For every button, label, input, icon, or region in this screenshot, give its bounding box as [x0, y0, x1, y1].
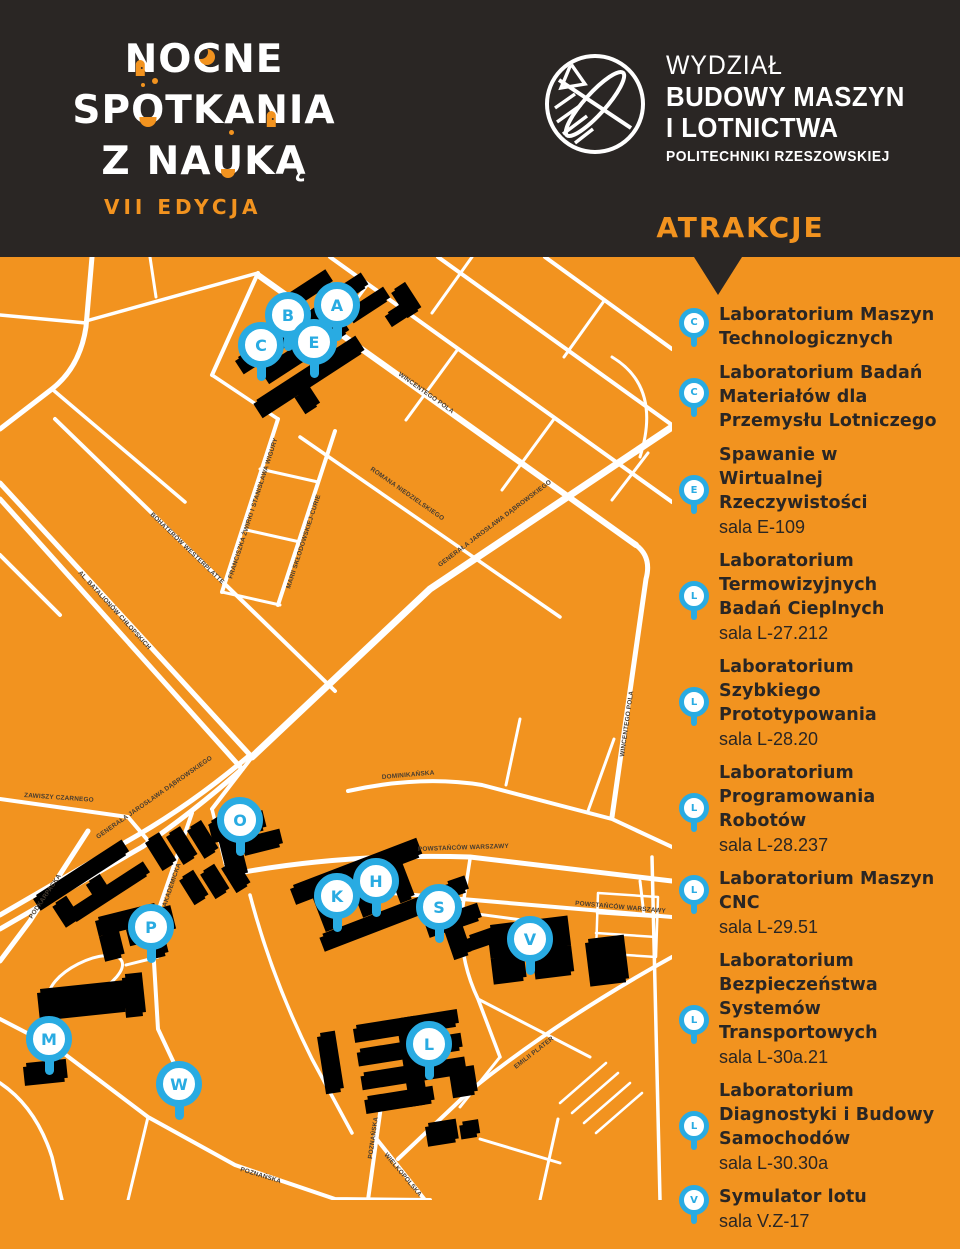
attractions-heading: ATRAKCJE — [648, 211, 833, 244]
pin-letter: M — [26, 1016, 72, 1062]
location-pin-icon: C — [678, 308, 710, 347]
pin-letter: C — [238, 322, 284, 368]
pin-stem — [691, 504, 697, 514]
pin-letter: E — [679, 475, 709, 505]
logo-letter: O — [158, 37, 192, 82]
pin-letter: V — [507, 916, 553, 962]
map-pin-H[interactable]: H — [353, 858, 399, 917]
bubble-icon — [152, 78, 158, 84]
attraction-item[interactable]: C Laboratorium Maszyn Technologicznych — [678, 303, 944, 351]
pin-letter: L — [679, 687, 709, 717]
pin-stem — [175, 1106, 184, 1120]
logo-letter: K — [193, 88, 224, 133]
pin-letter: W — [156, 1061, 202, 1107]
bubble-icon — [141, 83, 145, 87]
logo-letter: Ą — [275, 139, 306, 184]
pin-stem — [147, 949, 156, 963]
attraction-room: sala L-27.212 — [719, 621, 944, 645]
pin-letter: L — [679, 1005, 709, 1035]
svg-text:BOHATERÓW WESTERPLATTE: BOHATERÓW WESTERPLATTE — [149, 510, 228, 586]
attraction-title: Laboratorium Termowizyjnych Badań Ciepln… — [719, 549, 944, 621]
map-pin-V[interactable]: V — [507, 916, 553, 975]
pin-letter: E — [291, 319, 337, 365]
faculty-name: WYDZIAŁ BUDOWY MASZYN I LOTNICTWA POLITE… — [666, 50, 905, 166]
svg-text:GENERAŁA JAROSŁAWA DĄBROWSKIEG: GENERAŁA JAROSŁAWA DĄBROWSKIEGO — [437, 479, 553, 569]
logo-letter: S — [72, 88, 101, 133]
pin-stem — [691, 407, 697, 417]
map-pin-P[interactable]: P — [128, 904, 174, 963]
pin-stem — [425, 1066, 434, 1080]
svg-text:POZNAŃSKA: POZNAŃSKA — [239, 1164, 282, 1185]
pin-letter: O — [217, 797, 263, 843]
logo-letter: N — [222, 37, 256, 82]
logo-letter: A — [180, 139, 211, 184]
location-pin-icon: E — [678, 475, 710, 514]
pin-stem — [435, 929, 444, 943]
moon-icon — [199, 49, 215, 65]
pin-letter: V — [679, 1185, 709, 1215]
pin-stem — [691, 822, 697, 832]
location-pin-icon: L — [678, 1005, 710, 1044]
map-pin-L[interactable]: L — [406, 1021, 452, 1080]
event-logo: NOCNE SPOTKANIA ZNAUKĄ VII EDYCJA — [58, 34, 350, 219]
map-graphic: AL. BATALIONÓW CHŁOPSKICH BOHATERÓW WEST… — [0, 257, 672, 1200]
attraction-title: Laboratorium Programowania Robotów — [719, 761, 944, 833]
logo-letter: A — [304, 88, 335, 133]
pin-stem — [333, 918, 342, 932]
door-icon — [267, 111, 276, 127]
pin-letter: H — [353, 858, 399, 904]
location-pin-icon: L — [678, 793, 710, 832]
pin-letter: S — [416, 884, 462, 930]
pin-letter: L — [679, 581, 709, 611]
pin-letter: C — [679, 308, 709, 338]
svg-text:WIELKOPOLSKA: WIELKOPOLSKA — [382, 1152, 423, 1198]
faculty-line: I LOTNICTWA — [666, 112, 905, 143]
location-pin-icon: C — [678, 378, 710, 417]
attraction-title: Laboratorium Badań Materiałów dla Przemy… — [719, 361, 944, 433]
pin-letter: C — [679, 378, 709, 408]
logo-letter: A — [224, 88, 255, 133]
svg-text:POWSTAŃCÓW WARSZAWY: POWSTAŃCÓW WARSZAWY — [418, 841, 510, 853]
logo-letter: K — [244, 139, 275, 184]
event-map-poster: { "theme": { "orange": "#F2931F", "dark"… — [0, 0, 960, 1200]
location-pin-icon: L — [678, 875, 710, 914]
attractions-list: C Laboratorium Maszyn Technologicznych C… — [672, 257, 960, 1200]
logo-letter: E — [256, 37, 284, 82]
location-pin-icon: L — [678, 687, 710, 726]
attraction-title: Symulator lotu — [719, 1185, 944, 1209]
pin-stem — [691, 1214, 697, 1224]
svg-text:WINCENTEGO POLA: WINCENTEGO POLA — [397, 371, 455, 415]
logo-line-nocne: NOCNE — [58, 34, 350, 85]
map-pin-W[interactable]: W — [156, 1061, 202, 1120]
map-pin-O[interactable]: O — [217, 797, 263, 856]
svg-text:DOMINIKAŃSKA: DOMINIKAŃSKA — [381, 767, 435, 781]
location-pin-icon: L — [678, 1111, 710, 1150]
attraction-title: Laboratorium Maszyn Technologicznych — [719, 303, 944, 351]
attraction-title: Laboratorium Bezpieczeństwa Systemów Tra… — [719, 949, 944, 1045]
attraction-title: Spawanie w Wirtualnej Rzeczywistości — [719, 443, 944, 515]
map-pin-C[interactable]: C — [238, 322, 284, 381]
faculty-line: WYDZIAŁ — [666, 50, 905, 81]
attraction-room: sala L-28.20 — [719, 727, 944, 751]
attraction-room: sala V.Z-17 — [719, 1209, 944, 1233]
pin-stem — [257, 367, 266, 381]
pin-letter: L — [406, 1021, 452, 1067]
attraction-item[interactable]: L Laboratorium Szybkiego Prototypowanias… — [678, 655, 944, 751]
pin-stem — [526, 961, 535, 975]
door-icon — [136, 60, 145, 76]
logo-letter: I — [289, 88, 305, 133]
pin-letter: P — [128, 904, 174, 950]
attraction-title: Laboratorium Diagnostyki i Budowy Samoch… — [719, 1079, 944, 1151]
attraction-item[interactable]: L Laboratorium Diagnostyki i Budowy Samo… — [678, 1079, 944, 1175]
svg-text:WINCENTEGO POLA: WINCENTEGO POLA — [619, 690, 635, 757]
attraction-room: sala E-109 — [719, 515, 944, 539]
pin-stem — [691, 1034, 697, 1044]
attraction-item[interactable]: E Spawanie w Wirtualnej Rzeczywistościsa… — [678, 443, 944, 539]
logo-letter: T — [165, 88, 193, 133]
attraction-item[interactable]: V Symulator lotusala V.Z-17 — [678, 1185, 944, 1249]
pin-stem — [691, 337, 697, 347]
pin-stem — [310, 364, 319, 378]
attraction-item[interactable]: L Laboratorium Programowania Robotówsala… — [678, 761, 944, 857]
attraction-item[interactable]: L Laboratorium Termowizyjnych Badań Ciep… — [678, 549, 944, 645]
logo-letter: Z — [101, 139, 130, 184]
map-pin-E[interactable]: E — [291, 319, 337, 378]
pin-letter: L — [679, 1111, 709, 1141]
pin-stem — [691, 904, 697, 914]
logo-line-spotkania: SPOTKANIA — [58, 85, 350, 136]
location-pin-icon: V — [678, 1185, 710, 1224]
faculty-logo — [541, 50, 649, 163]
header-bar: NOCNE SPOTKANIA ZNAUKĄ VII EDYCJA WYDZIA… — [0, 0, 960, 257]
edition-label: VII EDYCJA — [58, 195, 350, 219]
logo-letter: P — [101, 88, 131, 133]
campus-map[interactable]: AL. BATALIONÓW CHŁOPSKICH BOHATERÓW WEST… — [0, 257, 672, 1200]
airplane-propeller-icon — [541, 50, 649, 158]
faculty-line: BUDOWY MASZYN — [666, 81, 905, 112]
pin-stem — [236, 842, 245, 856]
logo-line-znauka: ZNAUKĄ — [58, 136, 350, 187]
attraction-room: sala L-30a.21 — [719, 1045, 944, 1069]
map-pin-S[interactable]: S — [416, 884, 462, 943]
attraction-item[interactable]: C Laboratorium Badań Materiałów dla Prze… — [678, 361, 944, 433]
building-shadows — [23, 257, 626, 1147]
attraction-item[interactable]: L Laboratorium Maszyn CNCsala L-29.51 — [678, 867, 944, 939]
attraction-room: sala L-30.30a — [719, 1151, 944, 1175]
attraction-title: Laboratorium Maszyn CNC — [719, 867, 944, 915]
attraction-item[interactable]: L Laboratorium Bezpieczeństwa Systemów T… — [678, 949, 944, 1069]
pin-stem — [691, 716, 697, 726]
pin-letter: L — [679, 793, 709, 823]
location-pin-icon: L — [678, 581, 710, 620]
faculty-line: POLITECHNIKI RZESZOWSKIEJ — [666, 148, 905, 166]
pin-stem — [691, 610, 697, 620]
attraction-room: sala L-28.237 — [719, 833, 944, 857]
pin-stem — [45, 1061, 54, 1075]
pin-letter: L — [679, 875, 709, 905]
svg-text:AL. BATALIONÓW CHŁOPSKICH: AL. BATALIONÓW CHŁOPSKICH — [77, 568, 154, 651]
map-pin-M[interactable]: M — [26, 1016, 72, 1075]
svg-text:FRANCISZKA ŻWIRKI I STANISŁAWA: FRANCISZKA ŻWIRKI I STANISŁAWA WIGURY — [225, 436, 279, 580]
pin-stem — [691, 1140, 697, 1150]
attraction-title: Laboratorium Szybkiego Prototypowania — [719, 655, 944, 727]
pin-stem — [372, 903, 381, 917]
logo-letter: N — [147, 139, 181, 184]
attraction-room: sala L-29.51 — [719, 915, 944, 939]
